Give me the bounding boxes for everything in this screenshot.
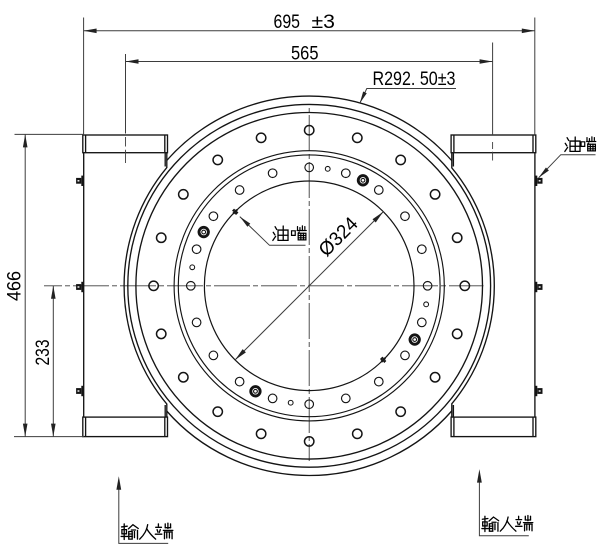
svg-text:565: 565: [291, 42, 319, 64]
svg-text:R292. 50±3: R292. 50±3: [373, 69, 456, 90]
svg-text:695: 695: [274, 11, 301, 33]
svg-text:466: 466: [4, 271, 26, 301]
svg-text:233: 233: [32, 340, 54, 366]
svg-text:±3: ±3: [312, 11, 336, 33]
